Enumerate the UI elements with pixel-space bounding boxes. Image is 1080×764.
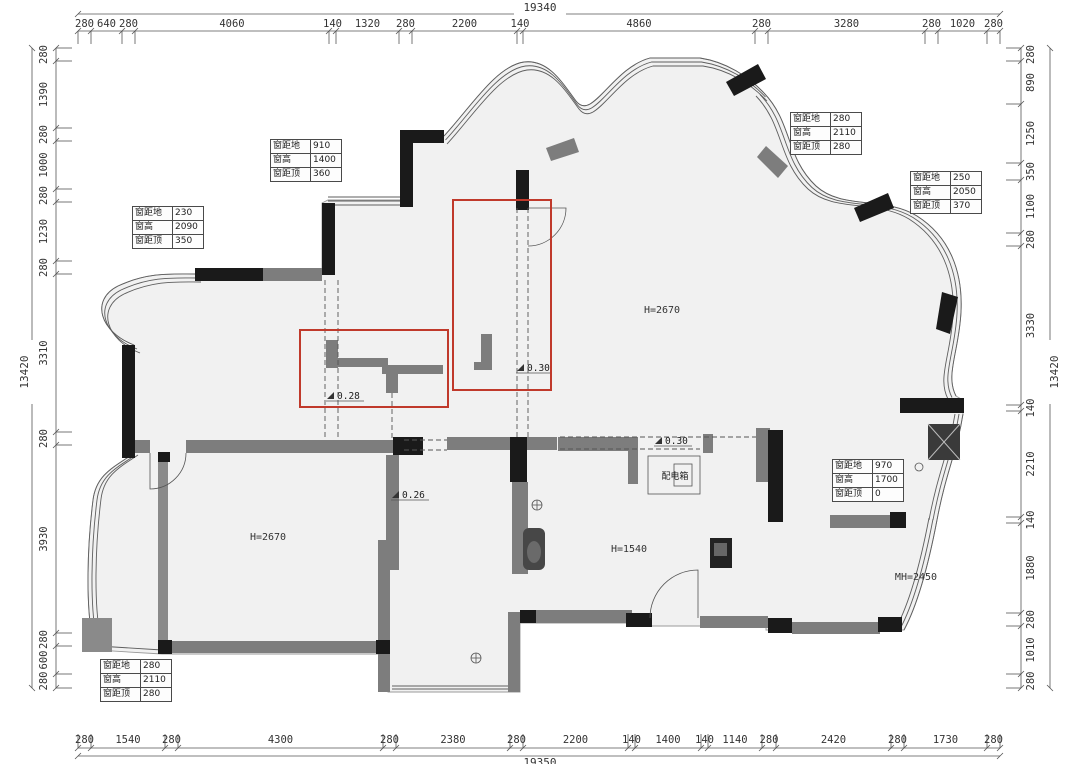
dim-text-right-7: 140 (1025, 399, 1037, 418)
dim-text-right-3: 350 (1025, 162, 1037, 181)
dim-text-right-1: 890 (1025, 73, 1037, 92)
dim-text-top-12: 280 (922, 18, 941, 30)
annotation-label: 窗高 (271, 154, 311, 168)
dim-text-top-5: 1320 (355, 18, 380, 30)
floor-plan-svg: 0.28 0.26 0.30 0.30 H=2670 H=2670 MH=245… (0, 0, 1080, 764)
dim-text-right-12: 1010 (1025, 637, 1037, 662)
annotation-label: 窗距地 (911, 172, 951, 186)
dim-text-right-0: 280 (1025, 45, 1037, 64)
annotation-value: 970 (873, 460, 903, 474)
window-annotation-right-bay: 窗距地 250 窗高 2050 窗距顶 370 (910, 171, 982, 214)
annotation-value: 280 (831, 113, 861, 127)
dim-text-bottom-13: 2420 (821, 734, 846, 746)
dim-text-right-11: 280 (1025, 610, 1037, 629)
level-mark-1: 0.28 (337, 391, 360, 402)
dim-text-bottom-2: 280 (162, 734, 181, 746)
dim-text-left-7: 3310 (38, 340, 50, 365)
dim-text-bottom-5: 2380 (440, 734, 465, 746)
annotation-value: 910 (311, 140, 341, 154)
window-annotation-top-right: 窗距地 280 窗高 2110 窗距顶 280 (790, 112, 862, 155)
dim-text-bottom-11: 1140 (722, 734, 747, 746)
annotation-value: 1400 (311, 154, 341, 168)
dim-text-top-7: 2200 (452, 18, 477, 30)
dim-text-bottom-8: 140 (622, 734, 641, 746)
annotation-value: 350 (173, 235, 203, 248)
dim-text-top-2: 280 (119, 18, 138, 30)
annotation-value: 1700 (873, 474, 903, 488)
annotation-label: 窗距顶 (791, 141, 831, 154)
dim-text-bottom-6: 280 (507, 734, 526, 746)
annotation-label: 窗距顶 (101, 688, 141, 701)
dim-text-right-5: 280 (1025, 230, 1037, 249)
dim-text-bottom-7: 2200 (563, 734, 588, 746)
distribution-box-label: 配电箱 (661, 470, 688, 482)
annotation-label: 窗距地 (791, 113, 831, 127)
annotation-label: 窗距顶 (271, 168, 311, 181)
level-mark-4: 0.30 (665, 436, 688, 447)
annotation-value: 280 (141, 660, 171, 674)
dim-text-top-0: 280 (75, 18, 94, 30)
dim-text-left-11: 600 (38, 651, 50, 670)
dim-text-right-9: 140 (1025, 511, 1037, 530)
dim-text-left-5: 1230 (38, 219, 50, 244)
dim-total-right: 13420 (1048, 355, 1061, 388)
dim-text-left-8: 280 (38, 429, 50, 448)
dim-text-left-10: 280 (38, 630, 50, 649)
dim-text-right-13: 280 (1025, 672, 1037, 691)
dim-text-bottom-1: 1540 (115, 734, 140, 746)
annotation-value: 360 (311, 168, 341, 181)
passage-height-label: H=1540 (611, 544, 647, 555)
dim-text-top-8: 140 (511, 18, 530, 30)
annotation-value: 2110 (141, 674, 171, 688)
window-annotation-left-bay: 窗距地 230 窗高 2090 窗距顶 350 (132, 206, 204, 249)
dim-text-left-0: 280 (38, 45, 50, 64)
window-annotation-balcony: 窗距地 280 窗高 2110 窗距顶 280 (100, 659, 172, 702)
dim-text-top-9: 4860 (626, 18, 651, 30)
dim-text-right-8: 2210 (1025, 451, 1037, 476)
level-mark-3: 0.30 (527, 363, 550, 374)
dim-total-top: 19340 (523, 1, 556, 14)
annotation-value: 370 (951, 200, 981, 213)
annotation-value: 280 (141, 688, 171, 701)
duct-shaft (928, 424, 960, 460)
annotation-label: 窗高 (911, 186, 951, 200)
dim-text-left-2: 280 (38, 125, 50, 144)
dim-text-top-4: 140 (323, 18, 342, 30)
dim-text-bottom-9: 1400 (655, 734, 680, 746)
floor-drain-1 (471, 653, 481, 663)
annotation-label: 窗距顶 (833, 488, 873, 501)
annotation-label: 窗高 (791, 127, 831, 141)
annotation-label: 窗距地 (101, 660, 141, 674)
dim-text-left-4: 280 (38, 186, 50, 205)
level-mark-2: 0.26 (402, 490, 425, 501)
window-annotation-kitchen: 窗距地 970 窗高 1700 窗距顶 0 (832, 459, 904, 502)
dim-text-left-12: 280 (38, 672, 50, 691)
dim-text-left-3: 1000 (38, 152, 50, 177)
annotation-value: 0 (873, 488, 903, 501)
annotation-value: 250 (951, 172, 981, 186)
window-annotation-top-left: 窗距地 910 窗高 1400 窗距顶 360 (270, 139, 342, 182)
dim-text-bottom-10: 140 (695, 734, 714, 746)
dim-text-bottom-12: 280 (760, 734, 779, 746)
annotation-label: 窗距顶 (911, 200, 951, 213)
annotation-label: 窗距地 (271, 140, 311, 154)
annotation-label: 窗距地 (833, 460, 873, 474)
annotation-value: 2090 (173, 221, 203, 235)
dim-text-top-1: 640 (97, 18, 116, 30)
floor-plan-canvas: 0.28 0.26 0.30 0.30 H=2670 H=2670 MH=245… (0, 0, 1080, 764)
annotation-label: 窗高 (133, 221, 173, 235)
dim-text-left-6: 280 (38, 258, 50, 277)
dim-text-left-9: 3930 (38, 526, 50, 551)
dim-text-bottom-14: 280 (888, 734, 907, 746)
annotation-value: 280 (831, 141, 861, 154)
annotation-label: 窗高 (833, 474, 873, 488)
dim-text-top-3: 4060 (219, 18, 244, 30)
annotation-value: 230 (173, 207, 203, 221)
annotation-value: 2050 (951, 186, 981, 200)
dim-text-left-1: 1390 (38, 82, 50, 107)
dim-text-bottom-4: 280 (380, 734, 399, 746)
dim-total-bottom: 19350 (523, 756, 556, 764)
dim-text-bottom-3: 4300 (268, 734, 293, 746)
dim-text-bottom-15: 1730 (933, 734, 958, 746)
dim-text-right-2: 1250 (1025, 121, 1037, 146)
dim-total-left: 13420 (18, 355, 31, 388)
bedroom-height-label: H=2670 (250, 532, 286, 543)
dim-text-top-10: 280 (752, 18, 771, 30)
dim-text-bottom-0: 280 (75, 734, 94, 746)
annotation-label: 窗距顶 (133, 235, 173, 248)
dim-text-top-14: 280 (984, 18, 1003, 30)
dim-text-top-6: 280 (396, 18, 415, 30)
dim-text-top-13: 1020 (950, 18, 975, 30)
dim-text-right-6: 3330 (1025, 313, 1037, 338)
dim-text-bottom-16: 280 (984, 734, 1003, 746)
master-height-label: MH=2450 (895, 572, 937, 583)
floor-drain-2 (532, 500, 542, 510)
dim-text-right-4: 1100 (1025, 194, 1037, 219)
annotation-label: 窗距地 (133, 207, 173, 221)
annotation-value: 2110 (831, 127, 861, 141)
dim-text-right-10: 1880 (1025, 555, 1037, 580)
living-height-label: H=2670 (644, 305, 680, 316)
dim-text-top-11: 3280 (834, 18, 859, 30)
annotation-label: 窗高 (101, 674, 141, 688)
